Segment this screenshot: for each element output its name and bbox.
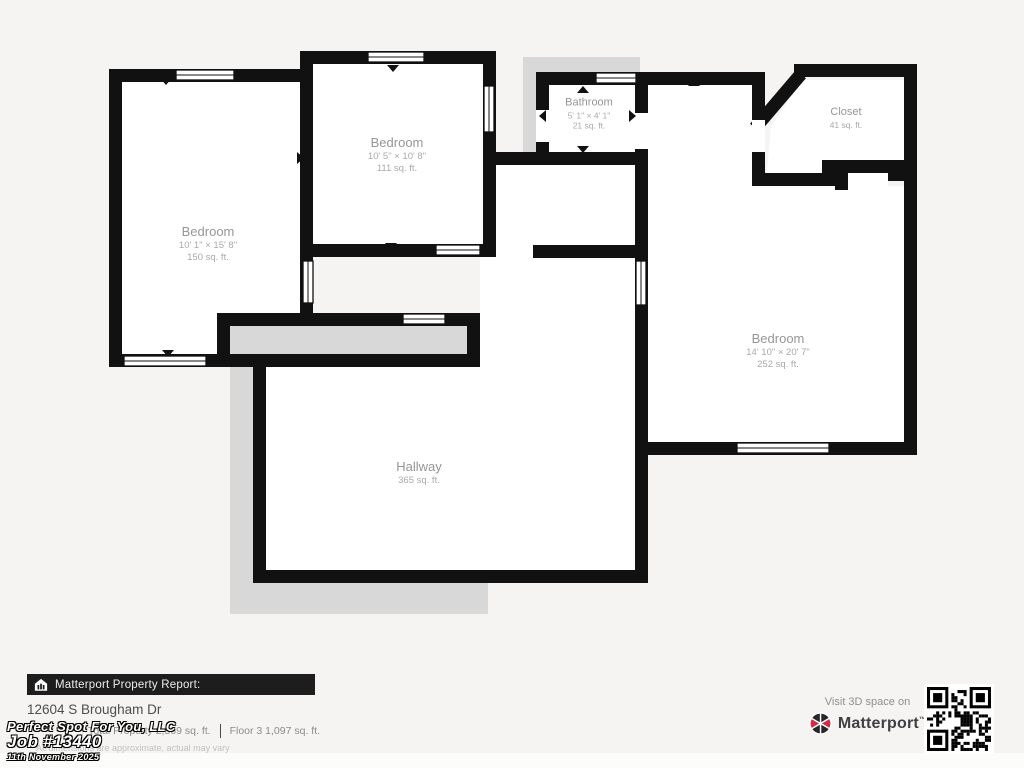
- watermark-job-number: Job #13440: [7, 732, 102, 752]
- bottom-strip: [0, 753, 1024, 768]
- stats-divider: [220, 724, 221, 738]
- qr-code: [924, 684, 994, 754]
- matterport-logo-icon: [809, 712, 832, 735]
- qr-code-pattern: [927, 687, 991, 751]
- floorplan-drawing: [0, 0, 1024, 768]
- report-title: Matterport Property Report:: [55, 679, 200, 691]
- floorplan-page: Bedroom 10' 1" × 15' 8" 150 sq. ft. Bedr…: [0, 0, 1024, 768]
- home-chart-icon: [34, 678, 48, 692]
- matterport-wordmark: Matterport™: [838, 715, 926, 733]
- report-header-bar: Matterport Property Report:: [27, 674, 315, 695]
- matterport-brand: Matterport™: [790, 712, 945, 735]
- watermark-date: 11th November 2025: [7, 752, 99, 762]
- stat-floor: Floor 3 1,097 sq. ft.: [230, 725, 320, 737]
- property-address: 12604 S Brougham Dr: [27, 702, 161, 717]
- visit-3d-label: Visit 3D space on: [790, 696, 945, 708]
